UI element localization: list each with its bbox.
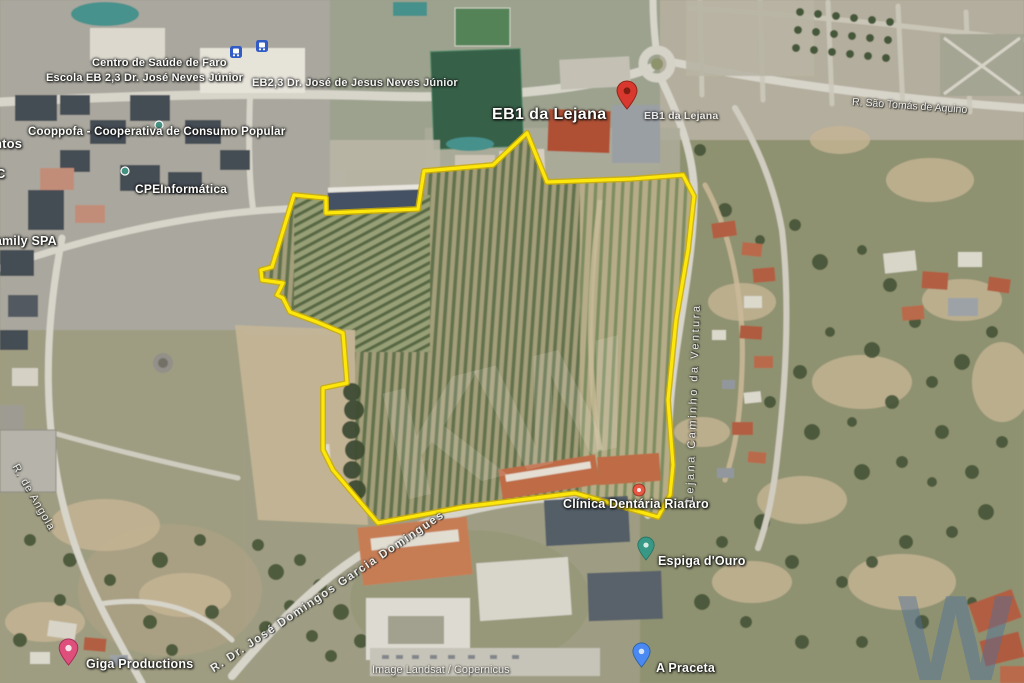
label-espiga[interactable]: Espiga d'Ouro: [658, 555, 746, 569]
label-centro-saude[interactable]: Centro de Saúde de Faro: [92, 57, 227, 69]
imagery-attribution: Image Landsat / Copernicus: [372, 664, 510, 676]
transit-stop-icon[interactable]: [230, 46, 242, 58]
transit-stop-icon[interactable]: [256, 40, 268, 52]
label-eb1-main[interactable]: EB1 da Lejana: [492, 106, 607, 124]
praceta-place-pin-icon[interactable]: [632, 642, 651, 668]
label-eb1-small[interactable]: EB1 da Lejana: [644, 111, 718, 123]
label-family-spa[interactable]: Family SPA: [0, 235, 57, 249]
espiga-place-pin-icon[interactable]: [637, 536, 655, 561]
giga-place-pin-icon[interactable]: [58, 638, 79, 666]
label-giga[interactable]: Giga Productions: [86, 658, 193, 672]
clinica-poi-icon[interactable]: [632, 483, 646, 497]
label-cpe-informatica[interactable]: CPEInformática: [135, 183, 227, 196]
label-fragment-ntos: ntos: [0, 137, 22, 151]
map-viewport[interactable]: Centro de Saúde de Faro Escola EB 2,3 Dr…: [0, 0, 1024, 683]
label-fragment-c: C: [0, 167, 6, 181]
roundabout: [643, 50, 671, 78]
eb1-place-pin-icon[interactable]: [616, 80, 638, 110]
label-praceta[interactable]: A Praceta: [656, 662, 715, 676]
cpe-poi-dot-icon[interactable]: [120, 166, 130, 176]
label-escola-eb23[interactable]: Escola EB 2,3 Dr. José Neves Júnior: [46, 72, 243, 84]
label-eb23-jesus[interactable]: EB2,3 Dr. José de Jesus Neves Júnior: [252, 77, 458, 89]
label-cooppofa[interactable]: Cooppofa - Cooperativa de Consumo Popula…: [28, 126, 285, 139]
